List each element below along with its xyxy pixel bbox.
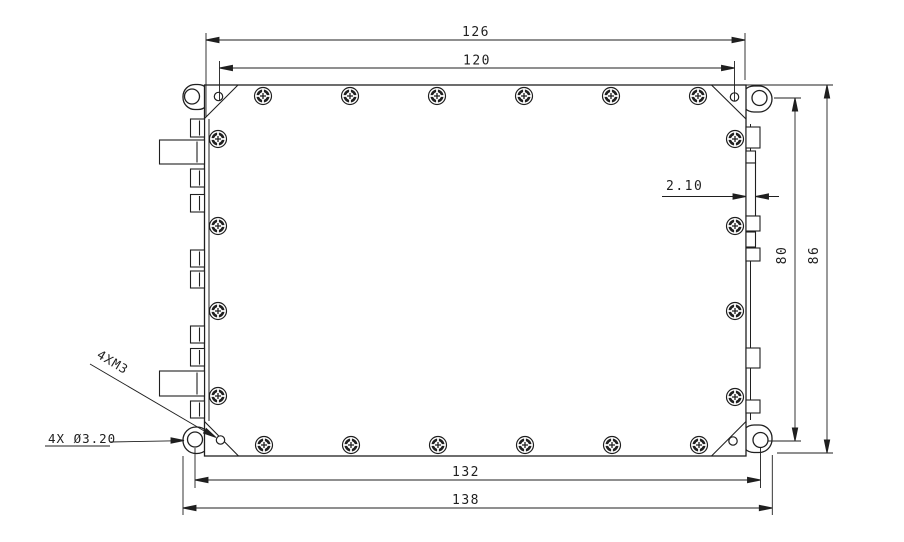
dim-value-86: 86 (807, 246, 822, 265)
screw (727, 131, 744, 148)
screw (210, 131, 227, 148)
screw (727, 389, 744, 406)
screw (342, 88, 359, 105)
screw (430, 437, 447, 454)
enclosure-outline (205, 85, 747, 456)
right-connector-tabs (746, 127, 760, 413)
dim-value-120: 120 (463, 54, 491, 69)
dim-value-126: 126 (462, 25, 490, 40)
screw (727, 218, 744, 235)
dim-value-80: 80 (775, 246, 790, 265)
dim-value-2-10: 2.10 (666, 179, 703, 194)
mounting-hole-large (185, 89, 200, 104)
callout-hole-text: 4X Ø3.20 (48, 431, 116, 446)
screw (210, 303, 227, 320)
screw (210, 388, 227, 405)
left-connector-tabs (160, 119, 205, 418)
callout-hole: 4X Ø3.20 (45, 431, 184, 446)
thread-hole-small (729, 437, 737, 445)
screw (343, 437, 360, 454)
technical-drawing: 126 120 132 138 (0, 0, 904, 542)
dimension-138: 138 (183, 455, 772, 515)
thread-hole-small (216, 436, 224, 444)
screw (691, 437, 708, 454)
mounting-hole-large (753, 433, 768, 448)
dim-value-132: 132 (452, 465, 480, 480)
enclosure-body (160, 85, 773, 457)
screw (516, 88, 533, 105)
screw (517, 437, 534, 454)
screw (210, 218, 227, 235)
screw (603, 88, 620, 105)
screw (429, 88, 446, 105)
screw (690, 88, 707, 105)
drawing-canvas: 126 120 132 138 (0, 0, 904, 542)
callout-thread-text: 4XM3 (94, 347, 131, 377)
thread-hole-small (214, 92, 222, 100)
mounting-hole-large (752, 91, 767, 106)
mounting-hole-large (188, 432, 203, 447)
dimension-80: 80 (768, 98, 801, 441)
screw (255, 88, 272, 105)
screw (727, 303, 744, 320)
screw (256, 437, 273, 454)
dim-value-138: 138 (452, 493, 480, 508)
screw (604, 437, 621, 454)
